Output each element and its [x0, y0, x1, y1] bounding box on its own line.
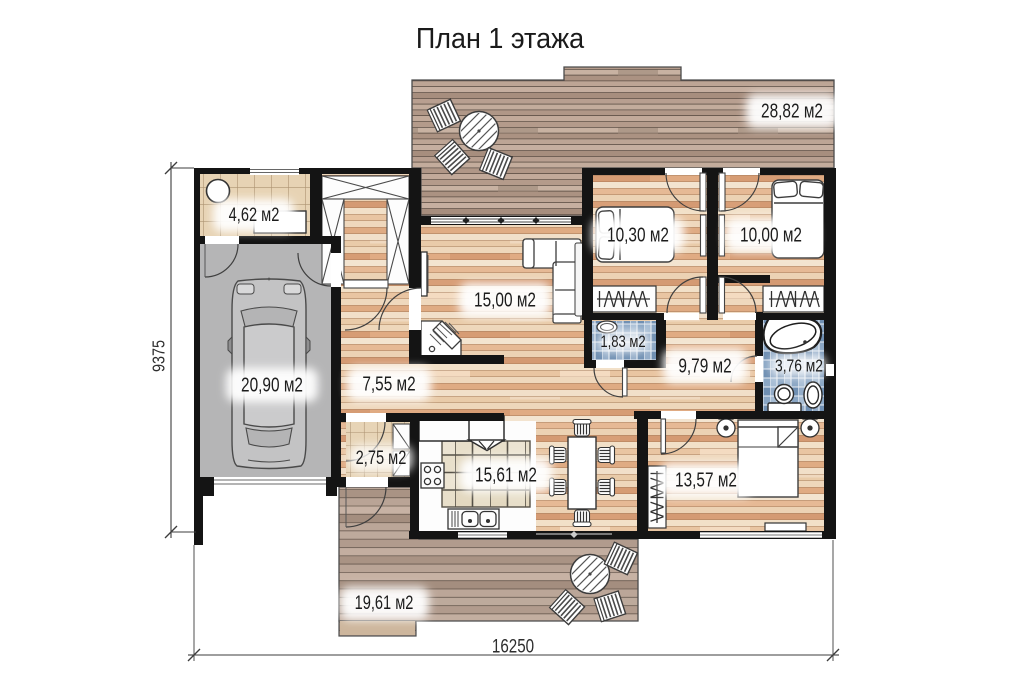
svg-text:7,55 м2: 7,55 м2: [362, 373, 415, 395]
svg-text:20,90 м2: 20,90 м2: [241, 374, 303, 396]
svg-text:2,75 м2: 2,75 м2: [356, 447, 407, 468]
svg-text:9375: 9375: [149, 340, 169, 372]
svg-text:10,00 м2: 10,00 м2: [740, 224, 802, 246]
svg-text:План 1 этажа: План 1 этажа: [416, 22, 585, 54]
svg-text:3,76 м2: 3,76 м2: [775, 356, 823, 376]
svg-text:28,82 м2: 28,82 м2: [761, 100, 823, 122]
svg-text:15,61 м2: 15,61 м2: [475, 464, 537, 486]
svg-text:19,61 м2: 19,61 м2: [355, 592, 414, 613]
svg-text:1,83 м2: 1,83 м2: [600, 332, 645, 351]
svg-text:4,62 м2: 4,62 м2: [229, 204, 280, 225]
svg-text:13,57 м2: 13,57 м2: [675, 469, 737, 491]
svg-text:10,30 м2: 10,30 м2: [607, 224, 669, 246]
svg-text:15,00 м2: 15,00 м2: [474, 289, 536, 311]
svg-text:16250: 16250: [492, 635, 534, 657]
svg-text:9,79 м2: 9,79 м2: [678, 355, 731, 377]
